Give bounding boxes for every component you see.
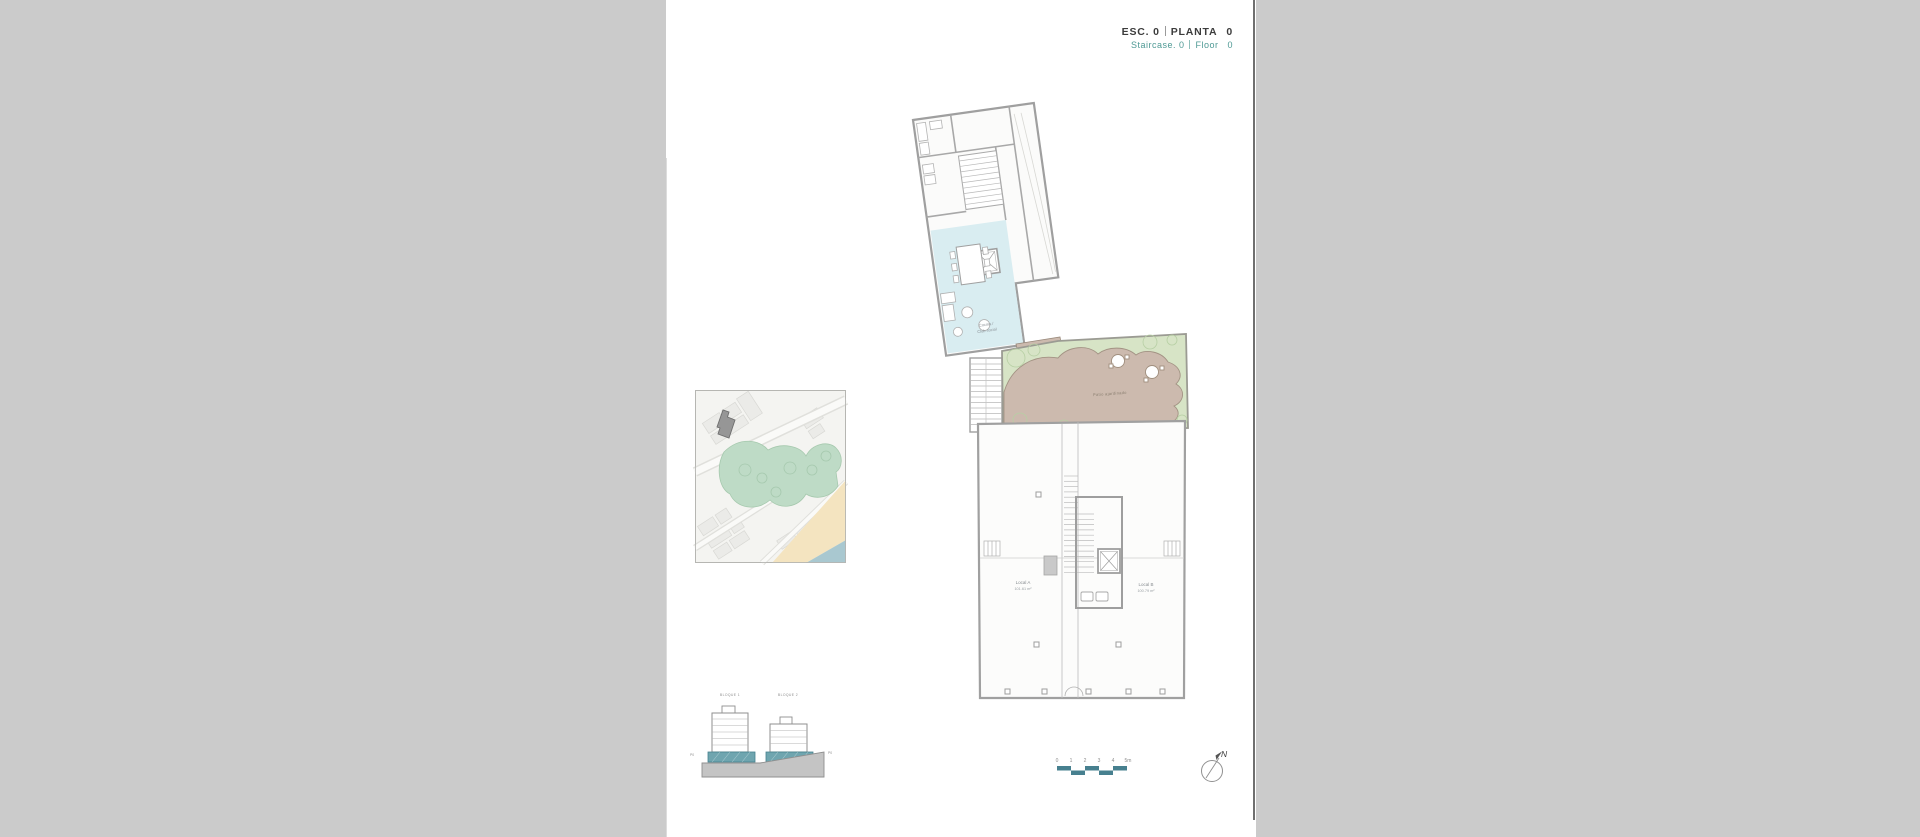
title-line-es: ESC. 0PLANTA0 xyxy=(1033,26,1233,39)
plan-footer: 0 1 2 3 4 5m N xyxy=(1040,740,1260,810)
block1-label: BLOQUE 1 xyxy=(720,693,740,697)
left-margin xyxy=(0,0,666,837)
page-left-rule xyxy=(666,158,667,837)
scale-tick-4: 4 xyxy=(1112,758,1115,764)
section-key: BLOQUE 1 BLOQUE 2 P0 P0 xyxy=(685,683,840,798)
floor-plan: Cocina / Club social Zona común xyxy=(880,80,1210,720)
building1-highlight-floor xyxy=(708,752,755,762)
scale-tick-1: 1 xyxy=(1070,758,1073,764)
scale-tick-0: 0 xyxy=(1056,758,1059,764)
level-label-right: P0 xyxy=(828,751,832,755)
scale-bar-segments xyxy=(1057,766,1127,775)
page-right-rule xyxy=(1253,0,1255,820)
title-block: ESC. 0PLANTA0 Staircase. 0Floor0 xyxy=(1033,26,1233,51)
level-label-left: P0 xyxy=(690,753,694,757)
local-b-area: 100.79 m² xyxy=(1137,589,1155,593)
scale-tick-2: 2 xyxy=(1084,758,1087,764)
floor-label: Floor xyxy=(1195,40,1218,50)
wall-mass xyxy=(1044,556,1057,575)
building-1 xyxy=(708,706,755,762)
staircase-label: Staircase. 0 xyxy=(1131,40,1185,50)
scale-tick-3: 3 xyxy=(1098,758,1101,764)
planta-label: PLANTA xyxy=(1171,26,1218,38)
title-separator xyxy=(1165,26,1166,36)
right-margin xyxy=(1256,0,1920,837)
lower-block: Local A 101.61 m² Local B 100.79 m² xyxy=(978,421,1185,698)
north-arrow-icon: N xyxy=(1202,749,1229,782)
patio-terrace: Patio ajardinado xyxy=(1002,334,1188,432)
planta-value: 0 xyxy=(1226,26,1233,38)
site-map xyxy=(695,390,847,564)
patio-stair xyxy=(970,358,1002,432)
plan-sheet: ESC. 0PLANTA0 Staircase. 0Floor0 xyxy=(0,0,1920,837)
scale-tick-5: 5m xyxy=(1125,758,1132,764)
upper-block: Cocina / Club social xyxy=(913,103,1067,356)
north-label: N xyxy=(1221,749,1228,759)
esc-label: ESC. 0 xyxy=(1122,26,1160,38)
floor-value: 0 xyxy=(1227,40,1233,50)
lower-elevator xyxy=(1098,549,1120,573)
local-b-name: Local B xyxy=(1138,582,1153,587)
upper-stair xyxy=(958,151,1003,210)
local-a-name: Local A xyxy=(1016,580,1031,585)
title-separator-en xyxy=(1189,40,1190,49)
title-line-en: Staircase. 0Floor0 xyxy=(1033,40,1233,51)
scale-bar: 0 1 2 3 4 5m xyxy=(1056,758,1132,775)
block2-label: BLOQUE 2 xyxy=(778,693,798,697)
local-a-area: 101.61 m² xyxy=(1014,587,1032,591)
